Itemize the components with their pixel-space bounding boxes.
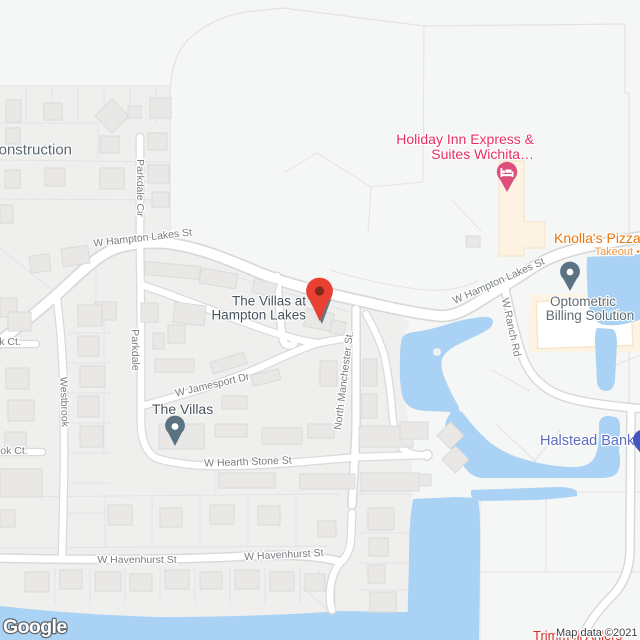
svg-text:Suites Wichita…: Suites Wichita… bbox=[431, 146, 534, 162]
svg-text:The Villas: The Villas bbox=[152, 401, 213, 417]
svg-text:Map data ©2021: Map data ©2021 bbox=[556, 627, 638, 639]
svg-text:Knolla's Pizza: Knolla's Pizza bbox=[554, 230, 640, 246]
svg-text:k Ct.: k Ct. bbox=[0, 336, 21, 348]
svg-text:Halstead Bank: Halstead Bank bbox=[540, 433, 635, 449]
svg-text:W Havenhurst St: W Havenhurst St bbox=[97, 554, 176, 566]
svg-text:Holiday Inn Express &: Holiday Inn Express & bbox=[396, 131, 534, 147]
svg-text:Google: Google bbox=[3, 616, 67, 638]
svg-text:construction: construction bbox=[0, 142, 72, 159]
svg-text:Westbrook: Westbrook bbox=[57, 377, 71, 428]
svg-text:Takeout •: Takeout • bbox=[595, 246, 640, 258]
svg-text:Optometric: Optometric bbox=[550, 294, 616, 309]
svg-text:Parkdale Cir: Parkdale Cir bbox=[134, 159, 146, 217]
svg-text:Parkdale: Parkdale bbox=[129, 329, 142, 371]
svg-text:Hampton Lakes: Hampton Lakes bbox=[211, 308, 306, 323]
svg-text:Billing Solution: Billing Solution bbox=[546, 308, 635, 323]
svg-text:The Villas at: The Villas at bbox=[232, 294, 306, 309]
svg-text:ok Ct.: ok Ct. bbox=[0, 445, 27, 457]
